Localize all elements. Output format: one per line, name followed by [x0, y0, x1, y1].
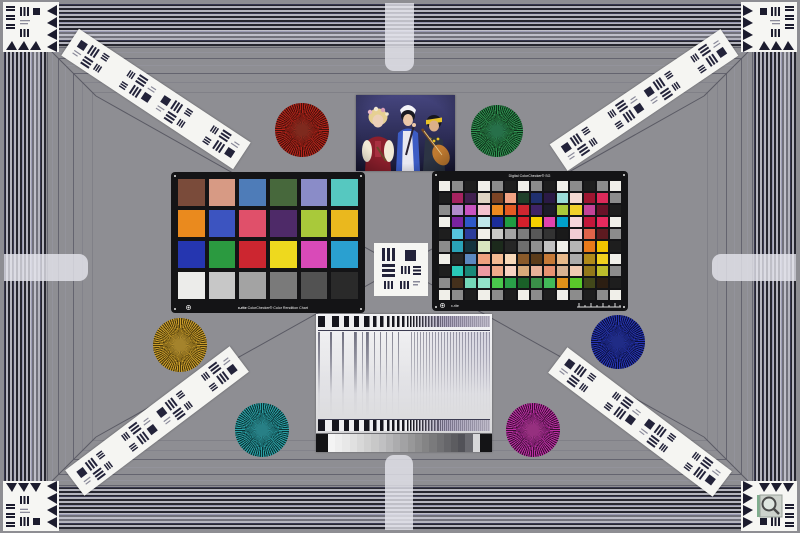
wedge-steps	[328, 434, 480, 452]
color-patch	[544, 254, 555, 264]
wedge-step	[335, 434, 342, 452]
color-patch	[544, 290, 555, 300]
color-patch	[570, 278, 581, 288]
corner-usaf-target-top-right	[741, 2, 797, 52]
color-patch	[584, 181, 595, 191]
bar-chirp-bottom	[318, 419, 490, 431]
color-patch	[610, 278, 621, 288]
color-patch	[584, 205, 595, 215]
xrite-logo-icon	[186, 305, 191, 310]
color-patch	[557, 290, 568, 300]
color-patch	[597, 217, 608, 227]
color-patch	[270, 241, 297, 268]
wedge-step	[429, 434, 436, 452]
wedge-step	[342, 434, 349, 452]
chirp-blur-zone	[411, 420, 490, 431]
corner-usaf-target-bottom-right	[741, 481, 797, 531]
color-patch	[557, 241, 568, 251]
color-patch	[465, 229, 476, 239]
color-patch	[557, 193, 568, 203]
color-patch	[544, 266, 555, 276]
color-patch	[492, 181, 503, 191]
color-patch	[439, 254, 450, 264]
color-patch	[439, 229, 450, 239]
wedge-step	[386, 434, 393, 452]
frequency-sweep-area	[318, 332, 490, 418]
wedge-black-cap	[480, 434, 492, 452]
color-patch	[492, 254, 503, 264]
siemens-star-teal	[235, 403, 289, 457]
color-patch	[465, 181, 476, 191]
color-patch	[492, 193, 503, 203]
color-patch	[452, 266, 463, 276]
color-patch	[584, 290, 595, 300]
color-patch	[610, 254, 621, 264]
color-patch	[610, 241, 621, 251]
wedge-step	[350, 434, 357, 452]
color-patch	[584, 241, 595, 251]
color-patch	[505, 266, 516, 276]
color-patch	[301, 179, 328, 206]
color-patch	[465, 205, 476, 215]
color-patch	[331, 241, 358, 268]
edge-tab-right	[712, 254, 796, 281]
color-patch	[557, 181, 568, 191]
color-patch	[465, 217, 476, 227]
color-patch	[505, 181, 516, 191]
color-patch	[301, 210, 328, 237]
color-patch	[570, 290, 581, 300]
wedge-step	[465, 434, 472, 452]
color-patch	[597, 193, 608, 203]
color-patch	[505, 205, 516, 215]
color-patch	[531, 193, 542, 203]
color-patch	[597, 229, 608, 239]
color-patch	[270, 272, 297, 299]
wedge-step	[444, 434, 451, 452]
color-patch	[439, 217, 450, 227]
color-patch	[178, 272, 205, 299]
color-patch	[610, 229, 621, 239]
classic-label: x-rite ColorChecker® Color Rendition Cha…	[238, 306, 308, 310]
colorchecker-classic: x-rite ColorChecker® Color Rendition Cha…	[171, 172, 365, 313]
color-patch	[597, 241, 608, 251]
sg-logo-text: x-rite	[451, 304, 459, 308]
color-patch	[505, 193, 516, 203]
color-patch	[439, 193, 450, 203]
color-patch	[452, 290, 463, 300]
chirp-segment	[318, 316, 344, 327]
wedge-black-cap	[316, 434, 328, 452]
color-patch	[584, 254, 595, 264]
magnifier-icon	[757, 495, 782, 517]
color-patch	[531, 290, 542, 300]
color-patch	[597, 205, 608, 215]
color-patch	[452, 217, 463, 227]
chirp-blur-zone	[411, 316, 490, 327]
color-patch	[478, 205, 489, 215]
wedge-step	[458, 434, 465, 452]
center-usaf-target	[374, 243, 428, 296]
color-patch	[331, 272, 358, 299]
color-patch	[544, 229, 555, 239]
color-patch	[570, 217, 581, 227]
color-patch	[478, 266, 489, 276]
color-patch	[597, 254, 608, 264]
chirp-segment	[344, 420, 366, 431]
color-patch	[331, 179, 358, 206]
color-patch	[452, 278, 463, 288]
wedge-step	[451, 434, 458, 452]
color-patch	[544, 181, 555, 191]
color-patch	[452, 205, 463, 215]
color-patch	[597, 278, 608, 288]
color-patch	[518, 254, 529, 264]
color-patch	[570, 205, 581, 215]
siemens-star-green	[471, 105, 523, 157]
color-patch	[584, 278, 595, 288]
color-patch	[518, 290, 529, 300]
color-patch	[478, 241, 489, 251]
color-patch	[610, 217, 621, 227]
color-patch	[610, 181, 621, 191]
color-patch	[518, 205, 529, 215]
color-patch	[544, 217, 555, 227]
wedge-step	[473, 434, 480, 452]
color-patch	[239, 241, 266, 268]
color-patch	[531, 229, 542, 239]
wedge-step	[400, 434, 407, 452]
sg-ruler-icon	[577, 302, 621, 309]
wedge-step	[422, 434, 429, 452]
wedge-step	[328, 434, 335, 452]
color-patch	[209, 272, 236, 299]
color-patch	[570, 266, 581, 276]
color-patch	[531, 205, 542, 215]
color-patch	[505, 278, 516, 288]
color-patch	[178, 241, 205, 268]
color-patch	[452, 241, 463, 251]
color-patch	[518, 181, 529, 191]
chirp-segment	[387, 316, 408, 327]
edge-tab-top	[385, 3, 414, 71]
wedge-step	[393, 434, 400, 452]
corner-usaf-target-bottom-left	[3, 481, 59, 531]
color-patch	[557, 266, 568, 276]
color-patch	[209, 179, 236, 206]
color-patch	[557, 205, 568, 215]
xrite-logo-icon	[440, 303, 445, 308]
color-patch	[492, 290, 503, 300]
color-patch	[570, 229, 581, 239]
color-patch	[505, 290, 516, 300]
color-patch	[505, 229, 516, 239]
color-patch	[544, 241, 555, 251]
wedge-step	[437, 434, 444, 452]
color-patch	[492, 229, 503, 239]
color-patch	[465, 241, 476, 251]
color-patch	[518, 278, 529, 288]
color-patch	[518, 193, 529, 203]
color-patch	[465, 193, 476, 203]
color-patch	[544, 278, 555, 288]
color-patch	[452, 254, 463, 264]
color-patch	[301, 241, 328, 268]
color-patch	[270, 210, 297, 237]
wedge-step	[379, 434, 386, 452]
color-patch	[557, 229, 568, 239]
sg-title: Digital ColorChecker® SG	[432, 171, 628, 181]
color-patch	[597, 266, 608, 276]
siemens-star-gold	[153, 318, 207, 372]
color-patch	[452, 229, 463, 239]
classic-footer: x-rite ColorChecker® Color Rendition Cha…	[171, 302, 365, 313]
color-patch	[531, 266, 542, 276]
color-patch	[478, 254, 489, 264]
wedge-step	[371, 434, 378, 452]
color-patch	[570, 241, 581, 251]
color-patch	[492, 205, 503, 215]
color-patch	[584, 229, 595, 239]
color-patch	[209, 241, 236, 268]
color-patch	[505, 254, 516, 264]
test-chart-canvas: x-rite ColorChecker® Color Rendition Cha…	[0, 0, 800, 533]
color-patch	[452, 193, 463, 203]
wedge-step	[364, 434, 371, 452]
color-patch	[270, 179, 297, 206]
color-patch	[301, 272, 328, 299]
color-patch	[570, 254, 581, 264]
sg-patch-grid	[439, 181, 621, 300]
chirp-segment	[318, 420, 344, 431]
color-patch	[492, 217, 503, 227]
color-patch	[439, 181, 450, 191]
color-patch	[478, 290, 489, 300]
siemens-star-magenta	[506, 403, 560, 457]
color-patch	[584, 266, 595, 276]
photo-target-musicians	[356, 95, 455, 171]
color-patch	[518, 241, 529, 251]
color-patch	[531, 241, 542, 251]
color-patch	[452, 181, 463, 191]
corner-usaf-target-top-left	[3, 2, 59, 52]
color-patch	[239, 179, 266, 206]
color-patch	[610, 290, 621, 300]
color-patch	[478, 193, 489, 203]
color-patch	[505, 217, 516, 227]
color-patch	[531, 278, 542, 288]
color-patch	[531, 181, 542, 191]
color-patch	[610, 205, 621, 215]
color-patch	[178, 210, 205, 237]
color-patch	[570, 193, 581, 203]
color-patch	[439, 290, 450, 300]
color-patch	[518, 229, 529, 239]
color-patch	[178, 179, 205, 206]
color-patch	[570, 181, 581, 191]
color-patch	[597, 181, 608, 191]
color-patch	[439, 241, 450, 251]
sg-footer: x-rite	[432, 300, 628, 311]
panel-divider-line	[318, 330, 490, 331]
edge-tab-left	[4, 254, 88, 281]
classic-patch-grid	[178, 179, 358, 299]
color-patch	[492, 241, 503, 251]
wedge-step	[408, 434, 415, 452]
siemens-star-red	[275, 103, 329, 157]
resolution-sweep-panel	[316, 314, 492, 433]
color-patch	[531, 217, 542, 227]
color-patch	[610, 193, 621, 203]
color-patch	[518, 217, 529, 227]
color-patch	[478, 229, 489, 239]
color-patch	[597, 290, 608, 300]
color-patch	[331, 210, 358, 237]
color-patch	[439, 278, 450, 288]
colorchecker-sg: Digital ColorChecker® SG x-rite	[432, 171, 628, 311]
color-patch	[610, 266, 621, 276]
color-patch	[239, 272, 266, 299]
color-patch	[584, 193, 595, 203]
color-patch	[465, 278, 476, 288]
color-patch	[439, 205, 450, 215]
color-patch	[465, 290, 476, 300]
chirp-segment	[366, 420, 387, 431]
color-patch	[557, 254, 568, 264]
color-patch	[239, 210, 266, 237]
color-patch	[557, 217, 568, 227]
color-patch	[544, 205, 555, 215]
color-patch	[584, 217, 595, 227]
color-patch	[465, 266, 476, 276]
grayscale-step-wedge	[316, 434, 492, 452]
color-patch	[492, 266, 503, 276]
chirp-segment	[366, 316, 387, 327]
color-patch	[557, 278, 568, 288]
color-patch	[478, 181, 489, 191]
wedge-step	[415, 434, 422, 452]
chirp-segment	[344, 316, 366, 327]
siemens-star-blue	[591, 315, 645, 369]
color-patch	[531, 254, 542, 264]
color-patch	[518, 266, 529, 276]
color-patch	[505, 241, 516, 251]
edge-tab-bottom	[385, 455, 413, 530]
color-patch	[439, 266, 450, 276]
wedge-step	[357, 434, 364, 452]
color-patch	[544, 193, 555, 203]
color-patch	[209, 210, 236, 237]
color-patch	[478, 278, 489, 288]
color-patch	[492, 278, 503, 288]
chirp-segment	[387, 420, 408, 431]
bar-chirp-top	[318, 316, 490, 327]
color-patch	[478, 217, 489, 227]
musicians-photo-illustration	[356, 95, 455, 171]
color-patch	[465, 254, 476, 264]
